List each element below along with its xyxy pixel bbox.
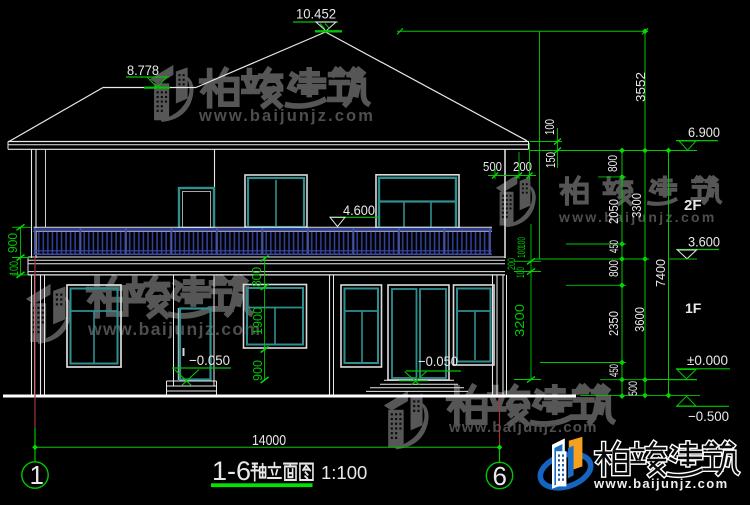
svg-text:±0.000: ±0.000 bbox=[687, 352, 728, 368]
svg-text:800: 800 bbox=[605, 155, 620, 172]
svg-text:14000: 14000 bbox=[252, 432, 286, 449]
svg-text:6: 6 bbox=[493, 461, 507, 491]
svg-text:www.baijunjz.com: www.baijunjz.com bbox=[593, 476, 729, 491]
svg-text:www.baijunjz.com: www.baijunjz.com bbox=[448, 419, 598, 436]
svg-text:500: 500 bbox=[483, 159, 502, 174]
svg-text:4.600: 4.600 bbox=[343, 202, 375, 218]
svg-text:1:100: 1:100 bbox=[321, 462, 367, 483]
svg-text:www.baijunjz.com: www.baijunjz.com bbox=[87, 319, 261, 339]
svg-text:150: 150 bbox=[543, 152, 558, 168]
svg-text:1F: 1F bbox=[685, 300, 702, 316]
svg-text:2350: 2350 bbox=[606, 311, 621, 336]
svg-text:3600: 3600 bbox=[632, 307, 647, 332]
svg-text:900: 900 bbox=[5, 233, 20, 253]
svg-text:7400: 7400 bbox=[653, 259, 668, 287]
svg-text:6.900: 6.900 bbox=[688, 124, 720, 140]
svg-text:3200: 3200 bbox=[512, 304, 527, 337]
svg-text:450: 450 bbox=[607, 240, 621, 253]
svg-text:1: 1 bbox=[30, 460, 44, 490]
svg-text:2F: 2F bbox=[684, 197, 702, 214]
svg-text:800: 800 bbox=[606, 260, 621, 277]
svg-text:−0.500: −0.500 bbox=[688, 408, 729, 424]
svg-text:−0.050: −0.050 bbox=[189, 352, 230, 368]
svg-text:3300: 3300 bbox=[629, 193, 644, 218]
svg-text:−0.050: −0.050 bbox=[418, 353, 458, 369]
svg-text:100: 100 bbox=[516, 247, 528, 258]
svg-text:900: 900 bbox=[250, 360, 265, 381]
svg-text:1-6: 1-6 bbox=[212, 456, 251, 486]
svg-text:100: 100 bbox=[542, 119, 557, 135]
svg-text:450: 450 bbox=[607, 364, 621, 377]
svg-text:100: 100 bbox=[7, 261, 21, 276]
svg-text:3.600: 3.600 bbox=[688, 234, 720, 250]
svg-text:3552: 3552 bbox=[633, 72, 648, 102]
svg-text:1900: 1900 bbox=[250, 307, 265, 335]
svg-text:100: 100 bbox=[515, 267, 527, 278]
svg-text:2050: 2050 bbox=[606, 199, 621, 224]
svg-text:8.778: 8.778 bbox=[127, 62, 159, 78]
svg-text:www.baijunjz.com: www.baijunjz.com bbox=[198, 107, 375, 125]
svg-text:10.452: 10.452 bbox=[296, 6, 336, 22]
svg-text:800: 800 bbox=[249, 267, 264, 287]
svg-text:500: 500 bbox=[626, 381, 640, 396]
svg-text:100: 100 bbox=[516, 237, 528, 248]
